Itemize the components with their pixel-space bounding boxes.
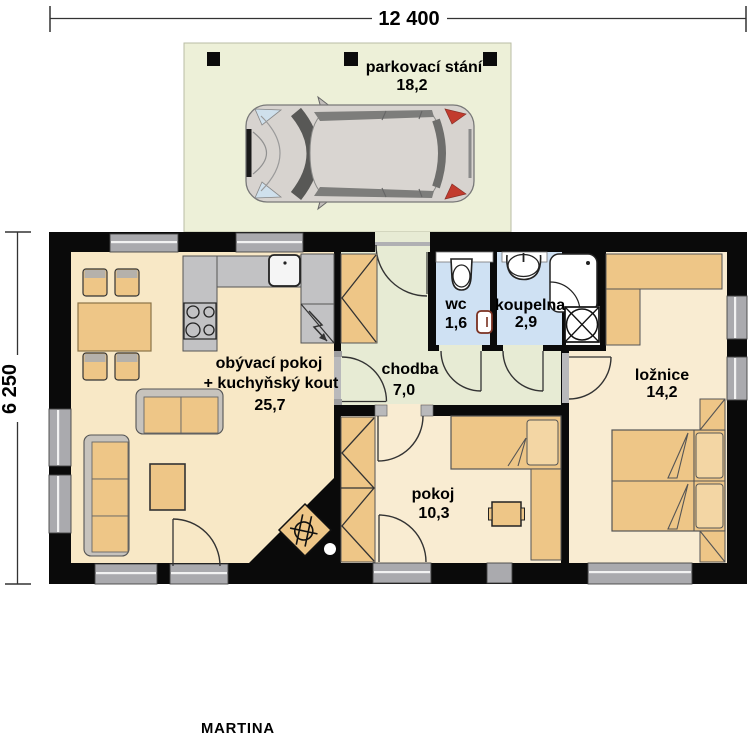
svg-text:25,7: 25,7 bbox=[254, 397, 285, 414]
svg-text:7,0: 7,0 bbox=[393, 382, 415, 399]
svg-text:MARTINA: MARTINA bbox=[201, 721, 275, 737]
svg-text:2,9: 2,9 bbox=[515, 314, 537, 331]
svg-text:ložnice: ložnice bbox=[635, 367, 689, 384]
svg-text:wc: wc bbox=[444, 296, 466, 313]
svg-text:10,3: 10,3 bbox=[418, 505, 449, 522]
svg-text:18,2: 18,2 bbox=[396, 77, 427, 94]
svg-text:pokoj: pokoj bbox=[412, 486, 455, 503]
svg-text:14,2: 14,2 bbox=[646, 384, 677, 401]
svg-text:6 250: 6 250 bbox=[0, 364, 21, 414]
svg-text:1,6: 1,6 bbox=[445, 315, 467, 332]
svg-text:chodba: chodba bbox=[382, 361, 439, 378]
svg-text:+ kuchyňský kout: + kuchyňský kout bbox=[204, 375, 339, 392]
svg-text:parkovací stání: parkovací stání bbox=[366, 59, 483, 76]
svg-text:obývací pokoj: obývací pokoj bbox=[216, 355, 323, 372]
svg-text:koupelna: koupelna bbox=[495, 297, 565, 314]
svg-text:12 400: 12 400 bbox=[378, 8, 439, 30]
